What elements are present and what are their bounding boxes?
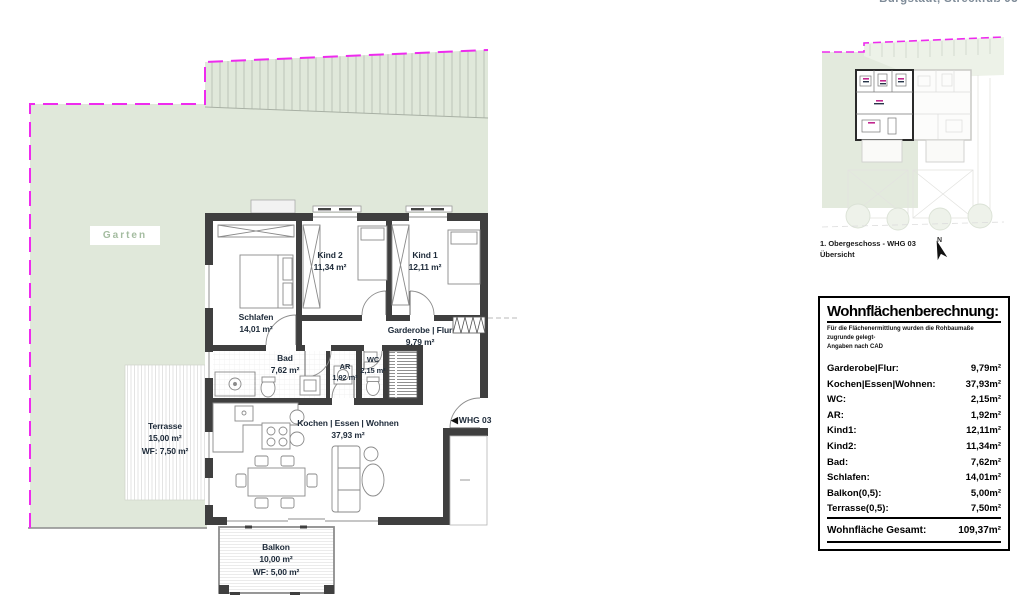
room-area: 7,62 m² xyxy=(255,364,315,376)
project-address: Burgstädt, Streckfuß 93 xyxy=(879,0,1018,5)
embankment-hatch xyxy=(205,50,488,118)
entry-arrow-icon: ◀ xyxy=(451,416,458,425)
room-label-kind1: Kind 1 12,11 m² xyxy=(390,249,460,274)
floor-plan-sheet: Burgstädt, Streckfuß 93 Garten Kind 2 11… xyxy=(0,0,1030,616)
room-name: Kochen | Essen | Wohnen xyxy=(288,417,408,429)
north-arrow-icon: N xyxy=(928,234,952,262)
room-name: Bad xyxy=(255,352,315,364)
balkon-label: Balkon 10,00 m² WF: 5,00 m² xyxy=(241,541,311,578)
table-row: Terrasse(0,5):7,50m² xyxy=(827,501,1001,519)
table-row: WC:2,15m² xyxy=(827,392,1001,408)
room-name: Kind 1 xyxy=(390,249,460,261)
table-row: Garderobe|Flur:9,79m² xyxy=(827,361,1001,377)
room-name: Kind 2 xyxy=(295,249,365,261)
table-subtitle-line2: Angaben nach CAD xyxy=(827,343,1001,352)
table-title: Wohnflächenberechnung: xyxy=(827,303,1001,323)
overview-caption: 1. Obergeschoss - WHG 03 Übersicht xyxy=(820,238,916,261)
room-label-wc: WC 2,15 m² xyxy=(353,355,393,377)
table-row: Kochen|Essen|Wohnen:37,93m² xyxy=(827,377,1001,393)
table-row: AR:1,92m² xyxy=(827,408,1001,424)
room-name: WC xyxy=(353,355,393,366)
table-total-value: 109,37m² xyxy=(958,523,1001,539)
table-total-label: Wohnfläche Gesamt: xyxy=(827,523,926,539)
entry-label: WHG 03 xyxy=(459,415,492,425)
room-label-schlafen: Schlafen 14,01 m² xyxy=(221,311,291,336)
room-wf: WF: 5,00 m² xyxy=(241,566,311,578)
armchair xyxy=(362,464,384,496)
room-label-garderobe: Garderobe | Flur 9,79 m² xyxy=(375,324,465,349)
table-row: Kind2:11,34m² xyxy=(827,439,1001,455)
table-row: Schlafen:14,01m² xyxy=(827,470,1001,486)
table-row: Bad:7,62m² xyxy=(827,455,1001,471)
table-row: Balkon(0,5):5,00m² xyxy=(827,486,1001,502)
garten-label: Garten xyxy=(103,230,147,241)
room-name: Balkon xyxy=(241,541,311,553)
room-area: 12,11 m² xyxy=(390,261,460,273)
room-label-kind2: Kind 2 11,34 m² xyxy=(295,249,365,274)
room-area: 37,93 m² xyxy=(288,429,408,441)
room-area: 11,34 m² xyxy=(295,261,365,273)
side-table xyxy=(364,447,378,461)
room-area: 14,01 m² xyxy=(221,323,291,335)
entry-marker-whg03: ◀ WHG 03 xyxy=(451,415,492,425)
dining-table xyxy=(248,468,305,496)
room-area: 2,15 m² xyxy=(353,366,393,377)
terrasse-label: Terrasse 15,00 m² WF: 7,50 m² xyxy=(130,420,200,457)
overview-map xyxy=(818,30,1008,235)
room-name: Garderobe | Flur xyxy=(375,324,465,336)
wall-projection xyxy=(251,200,295,213)
room-name: Schlafen xyxy=(221,311,291,323)
room-label-wohnen: Kochen | Essen | Wohnen 37,93 m² xyxy=(288,417,408,442)
table-subtitle-line1: Für die Flächenermittlung wurden die Roh… xyxy=(827,325,1001,343)
room-area: 9,79 m² xyxy=(375,336,465,348)
table-rows: Garderobe|Flur:9,79m² Kochen|Essen|Wohne… xyxy=(827,361,1001,543)
table-total-row: Wohnfläche Gesamt: 109,37m² xyxy=(827,521,1001,543)
table-row: Kind1:12,11m² xyxy=(827,423,1001,439)
overview-caption-line1: 1. Obergeschoss - WHG 03 xyxy=(820,238,916,249)
room-area: 15,00 m² xyxy=(130,432,200,444)
room-area: 10,00 m² xyxy=(241,553,311,565)
living-area-table: Wohnflächenberechnung: Für die Flächener… xyxy=(818,296,1010,551)
room-label-bad: Bad 7,62 m² xyxy=(255,352,315,377)
shaft-hatch xyxy=(389,351,417,398)
garten-label-box: Garten xyxy=(90,226,160,245)
overview-caption-line2: Übersicht xyxy=(820,249,916,260)
sofa xyxy=(332,446,360,512)
room-wf: WF: 7,50 m² xyxy=(130,445,200,457)
room-name: Terrasse xyxy=(130,420,200,432)
